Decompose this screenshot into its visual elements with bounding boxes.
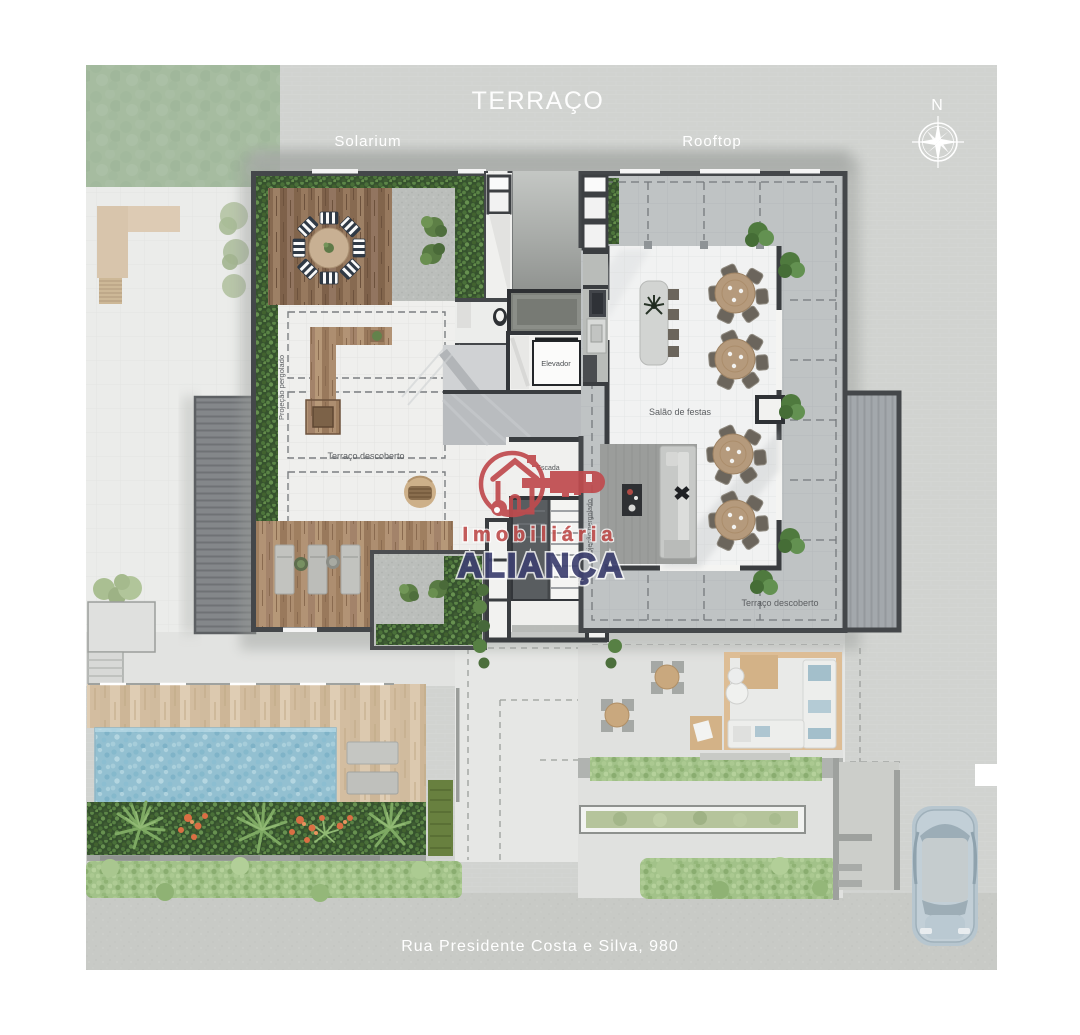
svg-text:Salão de festas: Salão de festas — [649, 407, 712, 417]
svg-text:Rua Presidente Costa e Silva,: Rua Presidente Costa e Silva, 980 — [401, 938, 679, 955]
svg-text:Solarium: Solarium — [334, 133, 401, 150]
svg-text:Terraço descoberto: Terraço descoberto — [327, 451, 404, 461]
svg-text:ALIANÇA: ALIANÇA — [458, 547, 625, 585]
svg-text:Terraço descoberto: Terraço descoberto — [741, 598, 818, 608]
svg-text:Elevador: Elevador — [541, 359, 571, 368]
svg-text:Imobiliária: Imobiliária — [462, 524, 617, 546]
svg-text:Rooftop: Rooftop — [682, 133, 742, 150]
svg-text:Projeção pergolado: Projeção pergolado — [277, 355, 286, 420]
svg-text:TERRAÇO: TERRAÇO — [472, 87, 605, 115]
svg-text:N: N — [931, 97, 943, 114]
